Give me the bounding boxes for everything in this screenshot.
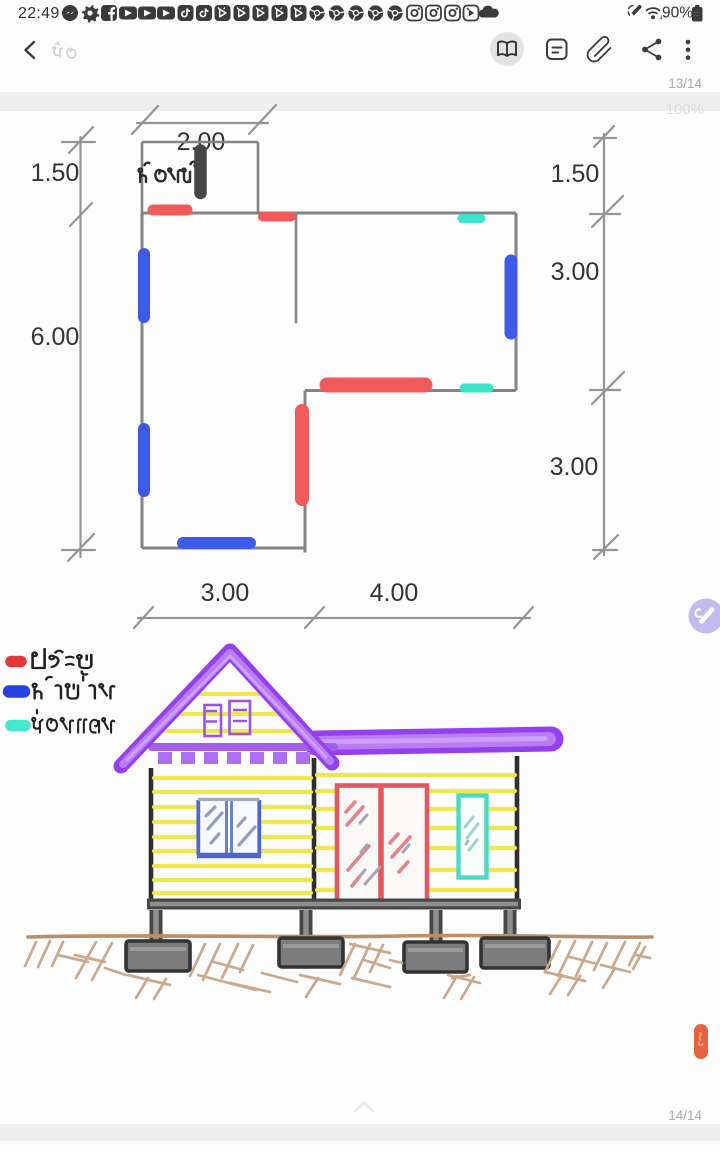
svg-text:3.00: 3.00	[201, 579, 250, 607]
svg-text:100%: 100%	[666, 101, 704, 118]
svg-text:3.00: 3.00	[551, 258, 600, 286]
svg-text:1.50: 1.50	[551, 160, 600, 188]
svg-text:13/14: 13/14	[668, 76, 702, 91]
svg-text:3.00: 3.00	[550, 453, 599, 481]
svg-text:4.00: 4.00	[370, 579, 419, 607]
svg-text:14/14: 14/14	[668, 1108, 702, 1123]
svg-text:90%: 90%	[662, 5, 693, 22]
svg-text:22:49: 22:49	[18, 5, 60, 22]
svg-text:6.00: 6.00	[31, 323, 80, 351]
svg-text:1.50: 1.50	[31, 159, 80, 187]
